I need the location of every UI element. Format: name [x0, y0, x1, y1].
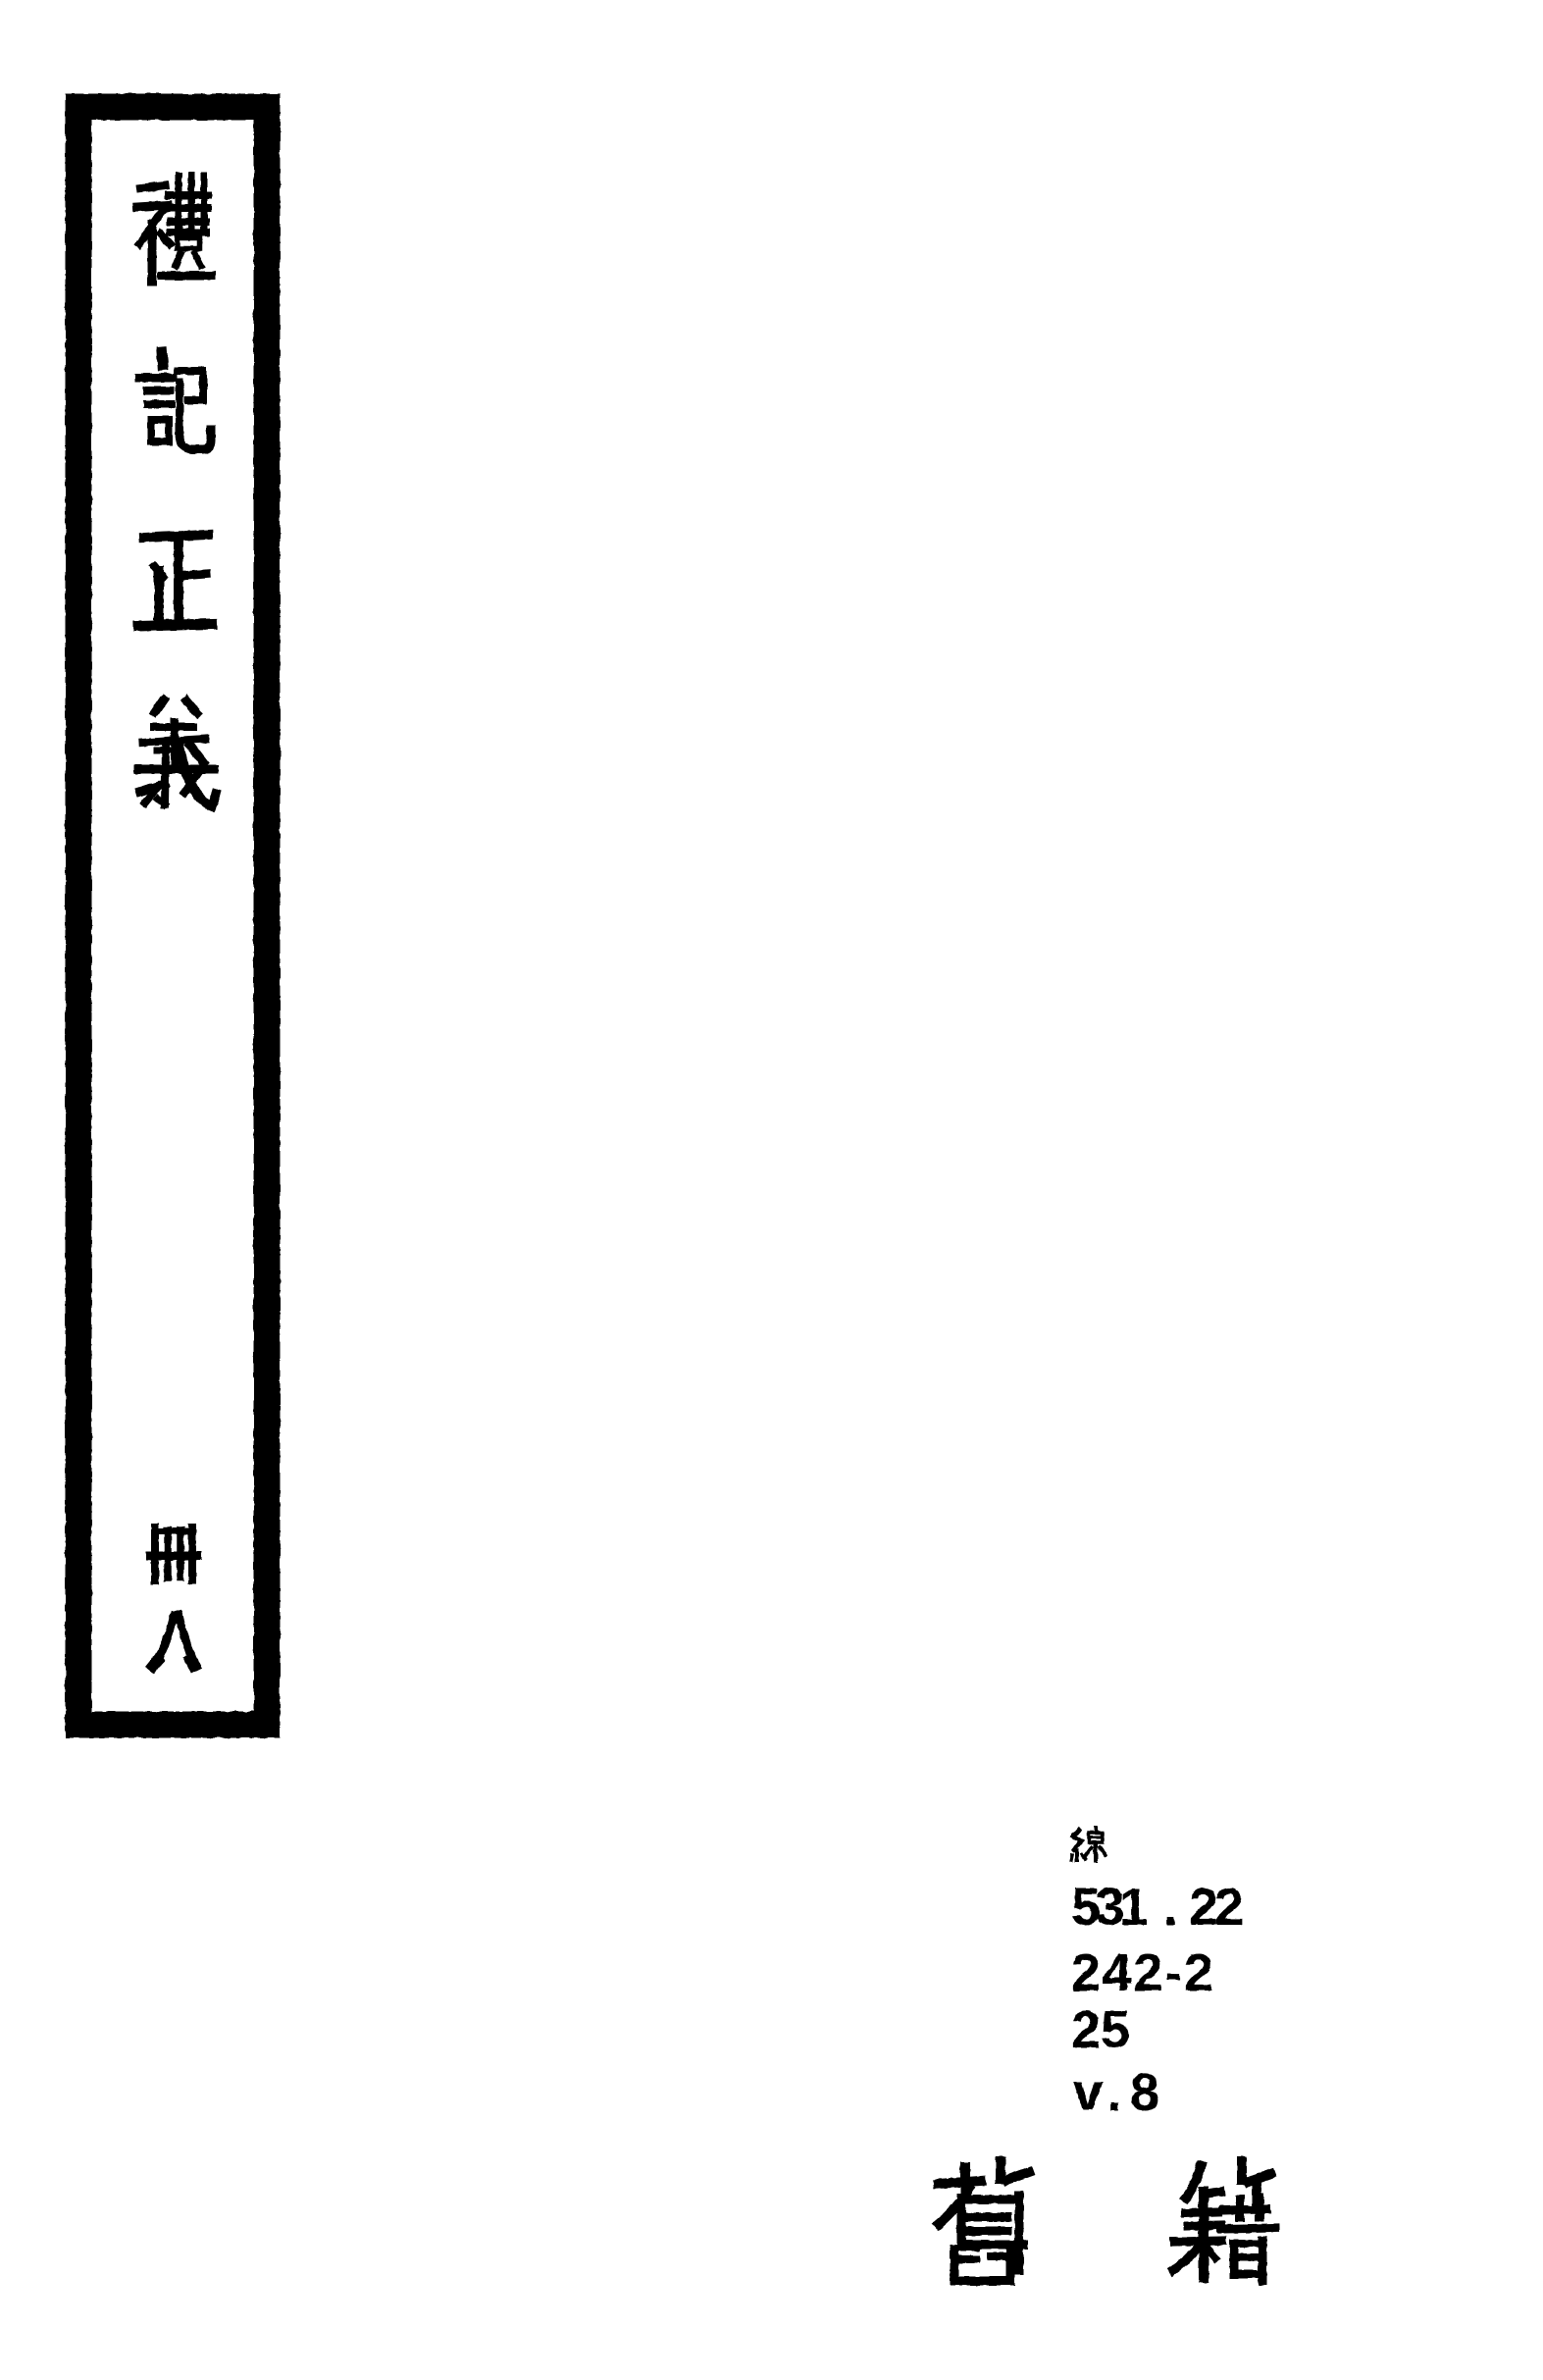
svg-text:22: 22 — [1189, 1878, 1244, 1937]
svg-text:v.8: v.8 — [1073, 2063, 1159, 2122]
svg-text:531: 531 — [1071, 1878, 1149, 1937]
svg-text:242-2: 242-2 — [1071, 1943, 1213, 2002]
svg-text:.: . — [1163, 1878, 1178, 1937]
svg-text:25: 25 — [1071, 2000, 1130, 2059]
